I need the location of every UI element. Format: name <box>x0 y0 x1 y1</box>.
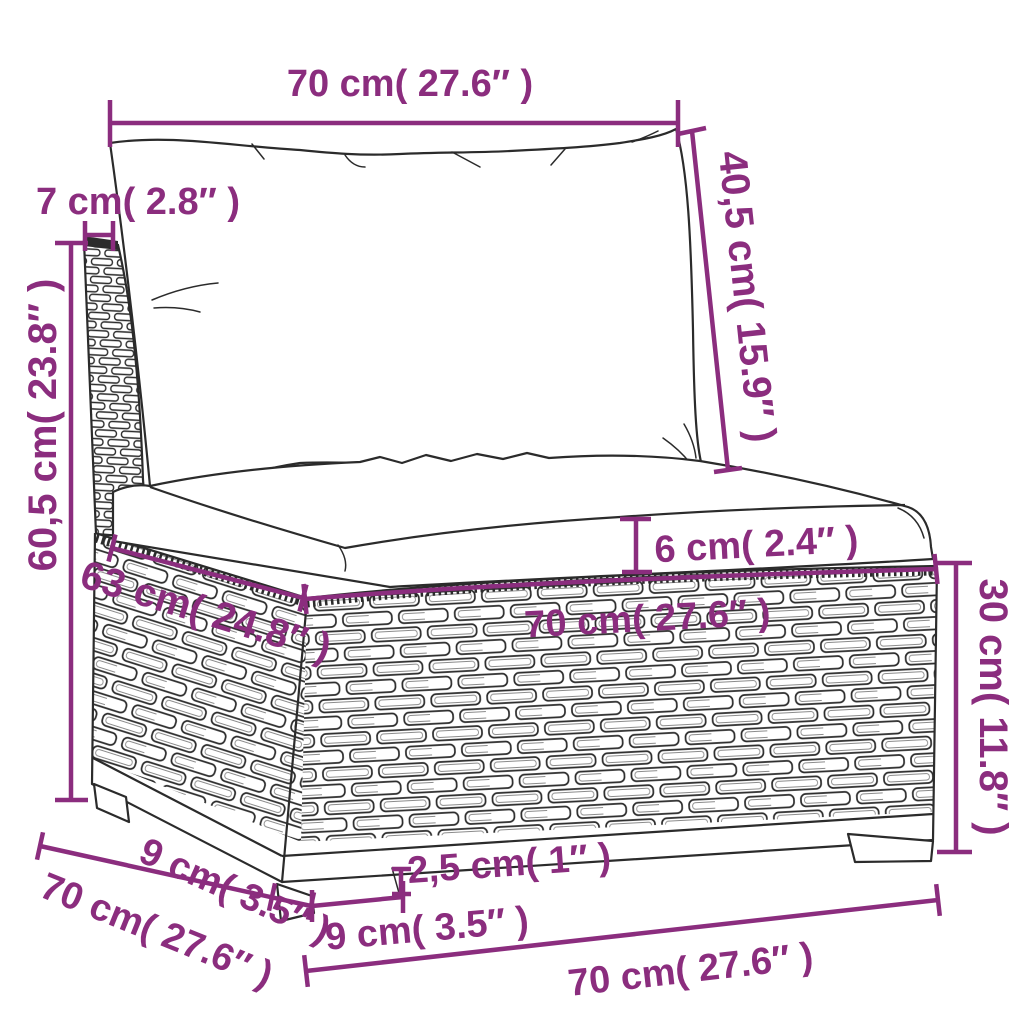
dimension-label: 60,5 cm( 23.8″ ) <box>21 279 65 572</box>
seat-cushion <box>113 453 933 587</box>
dimension-base-height: 30 cm( 11.8″ ) <box>937 563 1015 852</box>
dimension-label: 7 cm( 2.8″ ) <box>36 181 240 223</box>
diagram-canvas: 70 cm( 27.6″ ) 40,5 cm( 15.9″ ) 7 cm( 2.… <box>0 0 1024 1024</box>
dimension-line <box>937 563 972 852</box>
dimension-label: 70 cm( 27.6″ ) <box>566 935 816 1005</box>
dimension-back-cushion-width: 70 cm( 27.6″ ) <box>110 63 678 147</box>
dimension-label: 30 cm( 11.8″ ) <box>971 578 1015 835</box>
dimension-line <box>110 100 678 147</box>
seat-cushion-outline <box>113 453 933 587</box>
dimension-leg-front-width: 9 cm( 3.5″ ) <box>312 881 530 959</box>
dimension-label: 70 cm( 27.6″ ) <box>287 63 533 105</box>
product-dimension-diagram: 70 cm( 27.6″ ) 40,5 cm( 15.9″ ) 7 cm( 2.… <box>0 0 1024 1024</box>
dimension-total-height: 60,5 cm( 23.8″ ) <box>21 243 88 800</box>
